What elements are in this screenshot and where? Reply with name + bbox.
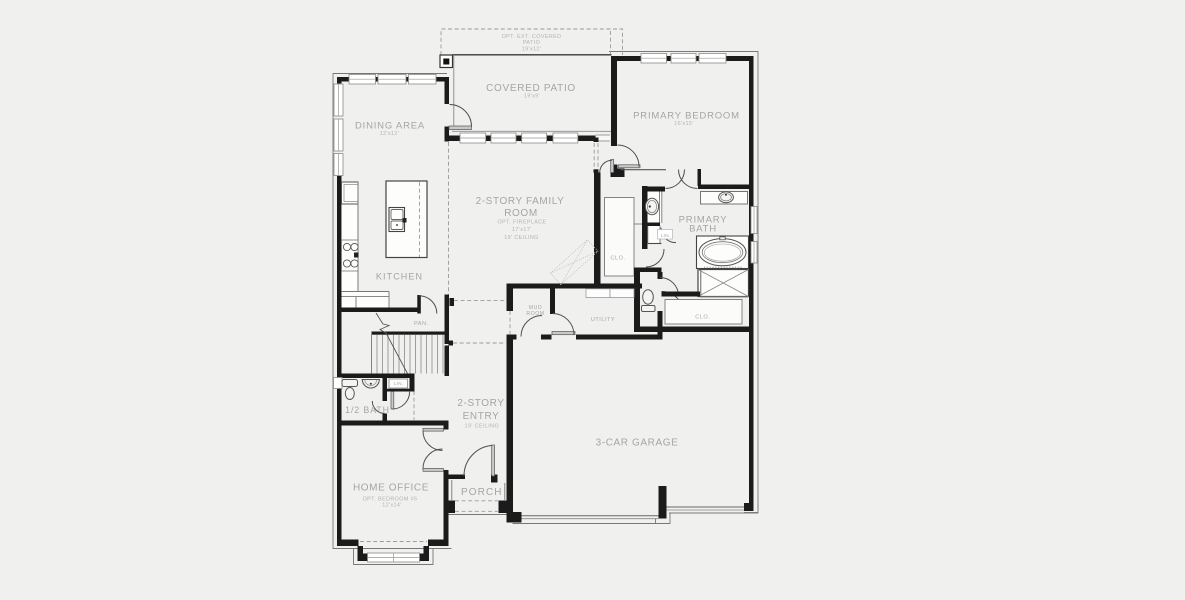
svg-text:3-CAR GARAGE: 3-CAR GARAGE	[596, 438, 679, 449]
svg-text:CLO.: CLO.	[610, 255, 625, 261]
svg-text:ROOM: ROOM	[504, 208, 538, 219]
svg-text:12'x14': 12'x14'	[382, 503, 402, 509]
svg-text:ENTRY: ENTRY	[463, 411, 500, 422]
svg-text:PAN.: PAN.	[414, 321, 429, 327]
svg-text:17'x17': 17'x17'	[512, 227, 532, 233]
svg-text:19'x9': 19'x9'	[524, 93, 540, 99]
svg-text:PORCH: PORCH	[461, 487, 503, 498]
svg-text:19' CEILING: 19' CEILING	[504, 235, 539, 241]
svg-text:19'x12': 19'x12'	[522, 46, 542, 52]
svg-text:12'x12': 12'x12'	[380, 131, 400, 137]
svg-text:UTILITY: UTILITY	[591, 317, 615, 323]
svg-text:HOME OFFICE: HOME OFFICE	[353, 483, 429, 494]
svg-text:CLO.: CLO.	[695, 315, 710, 321]
svg-text:19' CEILING: 19' CEILING	[465, 423, 500, 429]
svg-text:PRIMARY BEDROOM: PRIMARY BEDROOM	[633, 110, 740, 121]
svg-text:ROOM: ROOM	[526, 311, 544, 317]
svg-text:BATH: BATH	[689, 224, 717, 235]
svg-text:1/2 BATH: 1/2 BATH	[345, 405, 390, 415]
svg-text:2-STORY: 2-STORY	[457, 398, 504, 409]
svg-text:OPT. FIREPLACE: OPT. FIREPLACE	[497, 220, 546, 226]
svg-text:DINING AREA: DINING AREA	[355, 120, 425, 131]
svg-text:KITCHEN: KITCHEN	[376, 271, 423, 281]
svg-text:OPT. EXT. COVERED: OPT. EXT. COVERED	[502, 34, 562, 40]
svg-text:16'x15': 16'x15'	[674, 121, 694, 127]
svg-text:LIN.: LIN.	[661, 233, 671, 239]
svg-text:PATIO: PATIO	[523, 40, 540, 46]
svg-text:2-STORY FAMILY: 2-STORY FAMILY	[476, 196, 565, 207]
svg-text:LIN.: LIN.	[394, 381, 404, 387]
